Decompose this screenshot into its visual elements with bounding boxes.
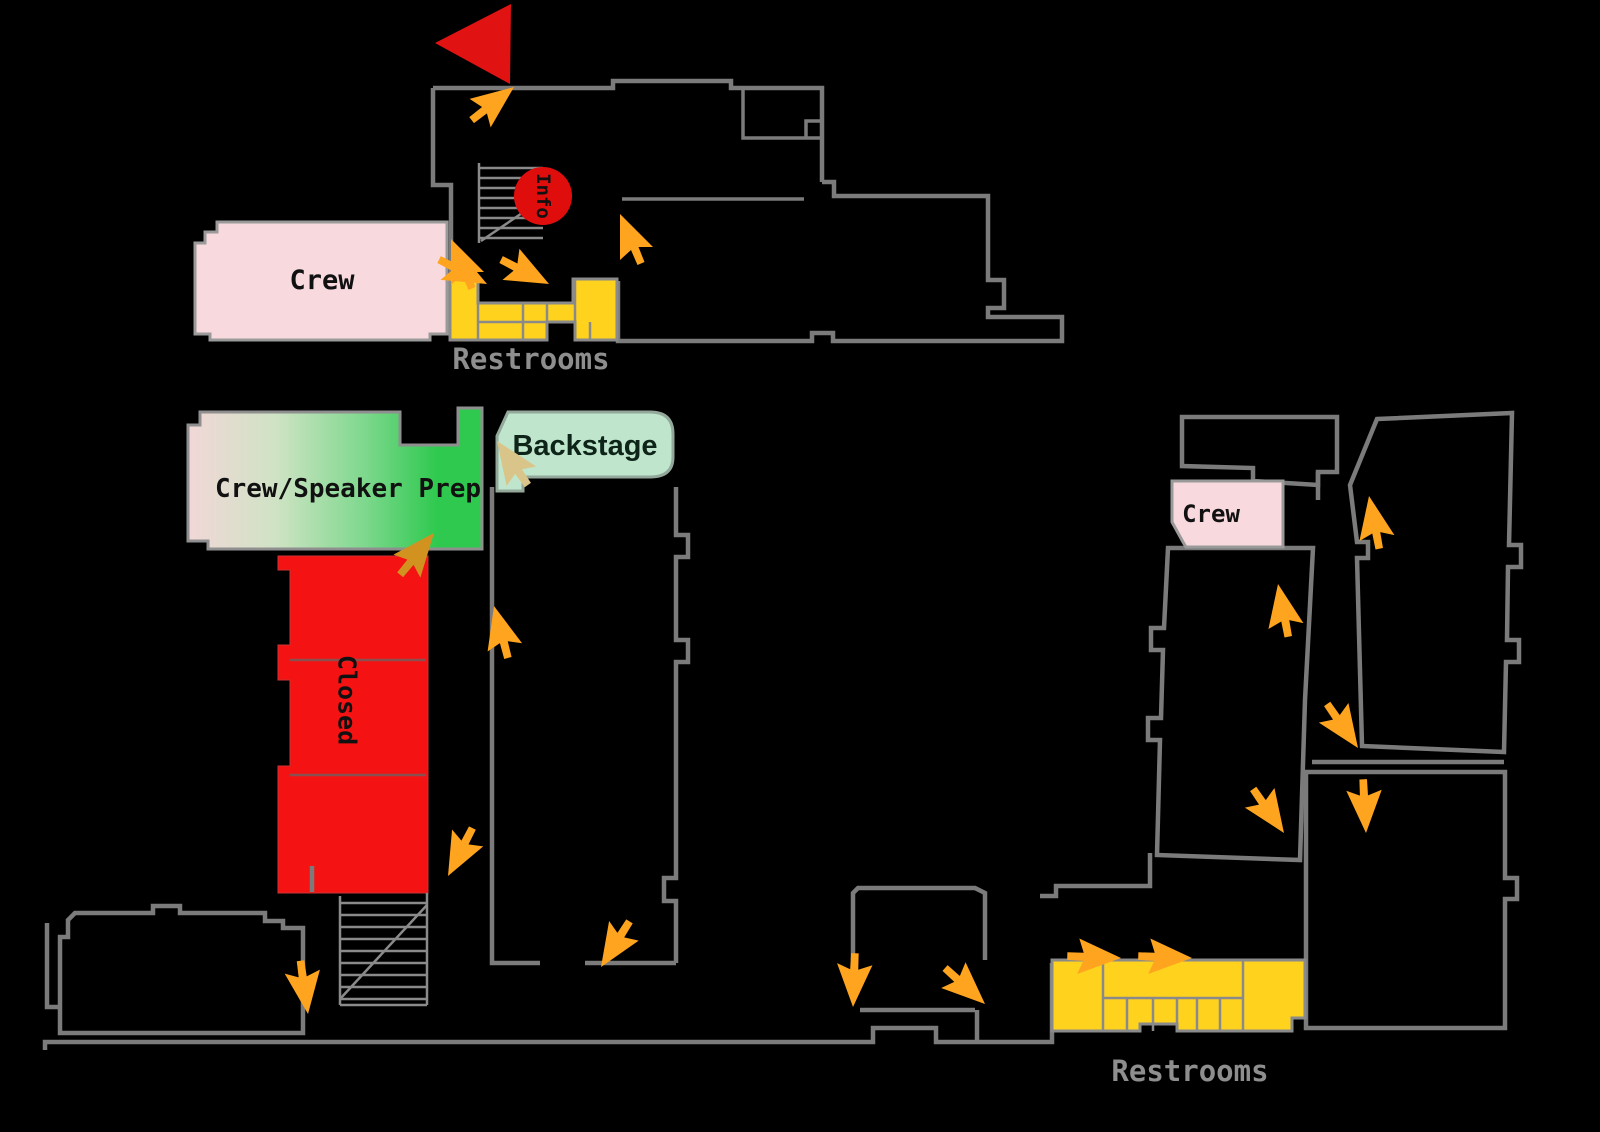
wall-corridor-bottom (45, 963, 1052, 1050)
wall-right-connector (1040, 853, 1150, 896)
crew-right-label: Crew (1182, 500, 1240, 528)
building-bottom-left (60, 906, 303, 1033)
stairs-lower-icon (340, 893, 427, 1005)
room-right-bottom (1306, 772, 1517, 1028)
room-restrooms-top: Restrooms (450, 279, 617, 376)
restrooms-top-label: Restrooms (452, 342, 609, 376)
room-crew-speaker-prep: Crew/Speaker Prep (188, 408, 482, 549)
flag-icon (435, 4, 511, 84)
floor-plan-map: Info Crew Restrooms Crew/Speaker Prep Ba… (0, 0, 1600, 1132)
floor-plan-svg: Info Crew Restrooms Crew/Speaker Prep Ba… (0, 0, 1600, 1132)
info-label: Info (532, 173, 554, 219)
restrooms-right-label: Restrooms (1111, 1054, 1268, 1088)
room-crew-right: Crew (1172, 481, 1283, 547)
room-right-top (1182, 417, 1337, 485)
room-right-tall-left (1148, 548, 1313, 860)
hall-center-walls (492, 487, 688, 963)
direction-arrow-icon (491, 245, 549, 305)
room-restrooms-right: Restrooms (1052, 960, 1305, 1088)
direction-arrow-icon (823, 947, 874, 1007)
room-crew-top: Crew (195, 222, 447, 340)
direction-arrow-icon (620, 214, 653, 265)
wall-right-wing (618, 182, 1062, 341)
direction-arrow-icon (582, 911, 643, 967)
room-top-right-inner (743, 88, 822, 138)
direction-arrow-icon (1241, 783, 1284, 840)
bottom-walls (45, 866, 1052, 1050)
direction-arrow-icon (1335, 774, 1383, 833)
info-badge-icon: Info (514, 167, 572, 225)
wall-left-hook (47, 923, 58, 1007)
backstage-label: Backstage (512, 430, 657, 462)
room-top-right-notch (806, 121, 822, 138)
direction-arrow-icon (276, 956, 321, 1014)
crew-top-label: Crew (289, 265, 355, 296)
direction-arrow-icon (465, 87, 523, 132)
room-closed: Closed (278, 556, 428, 893)
direction-arrow-icon (1267, 584, 1310, 641)
direction-arrow-icon (427, 818, 487, 876)
room-right-tall-right (1350, 413, 1521, 752)
direction-arrow-icon (1315, 698, 1358, 755)
prep-label: Crew/Speaker Prep (215, 474, 481, 504)
closed-label: Closed (333, 655, 362, 745)
